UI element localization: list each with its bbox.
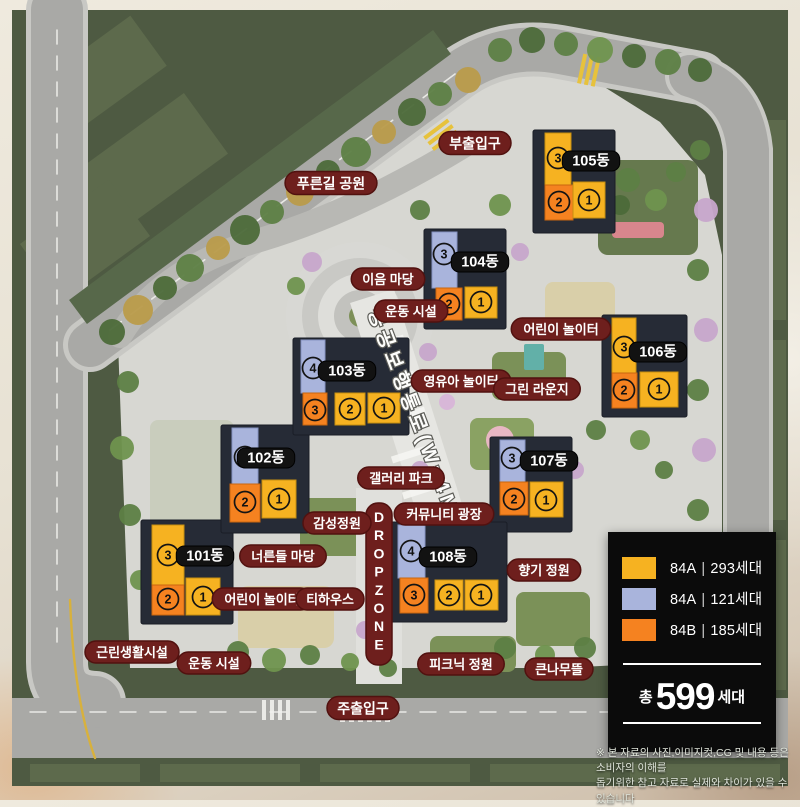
- dropzone-letter: O: [374, 545, 385, 561]
- facility-label: 갤러리 파크: [358, 467, 444, 489]
- svg-text:티하우스: 티하우스: [306, 592, 354, 607]
- disclaimer-line-2: 돕기위한 참고 자료로 실제와 차이가 있을 수 있습니다: [596, 776, 796, 806]
- park-label: 푸른길 공원: [285, 172, 377, 195]
- svg-text:103동: 103동: [328, 363, 366, 380]
- building-108동: 4321: [389, 522, 507, 622]
- svg-text:107동: 107동: [530, 453, 568, 470]
- tree: [687, 379, 709, 401]
- tree: [586, 420, 606, 440]
- svg-text:운동 시설: 운동 시설: [385, 304, 436, 319]
- legend-item-label: 84A|121세대: [670, 588, 762, 609]
- legend-divider: [623, 663, 761, 665]
- legend-item-label: 84B|185세대: [670, 619, 762, 640]
- tree: [655, 49, 681, 75]
- building-label-105동: 105동: [562, 151, 619, 171]
- svg-text:101동: 101동: [186, 548, 224, 565]
- building-label-101동: 101동: [176, 546, 233, 566]
- facility-label: 이음 마당: [351, 268, 424, 290]
- tree: [439, 394, 455, 410]
- unit-number: 3: [165, 549, 172, 563]
- svg-text:영유아 놀이터: 영유아 놀이터: [423, 374, 498, 389]
- unit-number: 1: [543, 494, 550, 508]
- tree: [688, 58, 712, 82]
- facility-label: 운동 시설: [177, 652, 250, 674]
- facility-label: 너른들 마당: [240, 545, 326, 567]
- svg-text:어린이 놀이터: 어린이 놀이터: [523, 322, 598, 337]
- legend-total-prefix: 총: [639, 686, 653, 707]
- site-plan-page: { "colors":{ "roof_yellow":"#F6B221", "r…: [0, 0, 800, 800]
- legend-item-label: 84A|293세대: [670, 557, 762, 578]
- legend-item: 84A|121세대: [608, 583, 776, 614]
- unit-number: 3: [441, 248, 448, 262]
- svg-text:너른들 마당: 너른들 마당: [251, 549, 314, 564]
- tree: [206, 236, 230, 260]
- building-label-102동: 102동: [237, 448, 294, 468]
- legend-item: 84A|293세대: [608, 552, 776, 583]
- tree: [99, 319, 125, 345]
- legend-panel: 84A|293세대84A|121세대84B|185세대 총 599 세대: [608, 532, 776, 752]
- svg-text:갤러리 파크: 갤러리 파크: [369, 471, 432, 486]
- tree: [587, 37, 613, 63]
- unit-number: 3: [312, 404, 319, 418]
- unit-number: 1: [586, 194, 593, 208]
- svg-text:그린 라운지: 그린 라운지: [505, 382, 568, 397]
- unit-number: 2: [242, 496, 249, 510]
- dropzone-letter: E: [374, 636, 383, 652]
- svg-text:105동: 105동: [572, 153, 610, 170]
- svg-text:근린생활시설: 근린생활시설: [96, 645, 168, 660]
- dropzone-letter: P: [374, 564, 383, 580]
- unit-number: 3: [411, 589, 418, 603]
- unit-number: 1: [478, 296, 485, 310]
- tree: [341, 137, 371, 167]
- tree: [488, 38, 512, 62]
- facility-label: 감성정원: [303, 512, 371, 534]
- tree: [398, 98, 426, 126]
- legend-swatch: [622, 588, 656, 610]
- legend-total: 총 599 세대: [608, 670, 776, 722]
- unit-number: 2: [446, 589, 453, 603]
- building-label-104동: 104동: [451, 252, 508, 272]
- dropzone-letter: D: [374, 509, 384, 525]
- tree: [287, 277, 305, 295]
- legend-item: 84B|185세대: [608, 614, 776, 645]
- tree: [410, 200, 430, 220]
- unit-number: 4: [310, 362, 317, 376]
- tree: [372, 120, 396, 144]
- legend-swatch: [622, 619, 656, 641]
- tree: [616, 168, 640, 192]
- tree: [123, 295, 153, 325]
- tree: [300, 645, 320, 665]
- facility-label: 운동 시설: [374, 300, 447, 322]
- unit-number: 4: [408, 545, 415, 559]
- tree: [230, 215, 260, 245]
- tree: [574, 637, 596, 659]
- svg-text:큰나무뜰: 큰나무뜰: [535, 662, 583, 677]
- facility-label: 피크닉 정원: [418, 653, 504, 675]
- building-label-108동: 108동: [419, 547, 476, 567]
- tree: [260, 200, 284, 224]
- facility-label: 근린생활시설: [85, 641, 179, 663]
- svg-text:이음 마당: 이음 마당: [362, 272, 413, 287]
- tree: [110, 436, 134, 460]
- svg-text:푸른길 공원: 푸른길 공원: [297, 176, 365, 192]
- unit-number: 3: [555, 152, 562, 166]
- svg-text:어린이 놀이터: 어린이 놀이터: [224, 592, 299, 607]
- svg-text:향기 정원: 향기 정원: [518, 563, 569, 578]
- facility-label: 향기 정원: [507, 559, 580, 581]
- legend-rows: 84A|293세대84A|121세대84B|185세대: [608, 552, 776, 645]
- facility-label: 커뮤니티 광장: [394, 503, 493, 525]
- dropzone-letter: O: [374, 600, 385, 616]
- unit-number: 2: [347, 403, 354, 417]
- dropzone-letter: N: [374, 618, 384, 634]
- tree: [694, 198, 718, 222]
- tree: [687, 259, 709, 281]
- unit-number: 1: [656, 383, 663, 397]
- tree: [489, 194, 511, 216]
- dropzone-letter: R: [374, 527, 384, 543]
- legend-total-suffix: 세대: [717, 686, 745, 707]
- svg-text:감성정원: 감성정원: [313, 516, 361, 531]
- svg-text:부출입구: 부출입구: [449, 136, 501, 152]
- tree: [119, 504, 141, 526]
- svg-text:108동: 108동: [429, 549, 467, 566]
- unit-number: 2: [165, 593, 172, 607]
- svg-text:106동: 106동: [639, 344, 677, 361]
- unit-number: 2: [511, 493, 518, 507]
- unit-number: 1: [381, 402, 388, 416]
- unit-number: 1: [276, 493, 283, 507]
- tree: [694, 318, 718, 342]
- building-105동: 321: [533, 130, 615, 233]
- tree: [554, 32, 578, 56]
- building-label-107동: 107동: [520, 451, 577, 471]
- tree: [176, 254, 204, 282]
- legend-swatch: [622, 557, 656, 579]
- building-label-103동: 103동: [318, 361, 375, 381]
- tree: [428, 82, 452, 106]
- tree: [117, 371, 139, 393]
- legend-total-value: 599: [656, 678, 715, 715]
- tree: [262, 648, 286, 672]
- unit-number: 1: [200, 591, 207, 605]
- tree: [687, 499, 709, 521]
- unit-number: 1: [478, 589, 485, 603]
- unit-number: 3: [509, 452, 516, 466]
- tree: [455, 67, 481, 93]
- tree: [655, 461, 673, 479]
- tree: [341, 653, 359, 671]
- facility-label: 어린이 놀이터: [511, 318, 610, 340]
- facility-label: 큰나무뜰: [525, 658, 593, 680]
- dropzone-letter: Z: [375, 582, 384, 598]
- tree: [692, 438, 716, 462]
- svg-text:104동: 104동: [461, 254, 499, 271]
- svg-text:102동: 102동: [247, 450, 285, 467]
- svg-text:주출입구: 주출입구: [337, 701, 389, 717]
- facility-label: 그린 라운지: [494, 378, 580, 400]
- building-label-106동: 106동: [629, 342, 686, 362]
- building-106동: 321: [602, 315, 687, 417]
- svg-text:피크닉 정원: 피크닉 정원: [429, 657, 492, 672]
- tree: [153, 276, 177, 300]
- tree: [511, 243, 529, 261]
- tree: [690, 140, 710, 160]
- entrance-label: 주출입구: [327, 697, 399, 720]
- unit-number: 2: [556, 196, 563, 210]
- svg-text:커뮤니티 광장: 커뮤니티 광장: [406, 507, 481, 522]
- disclaimer-text: ※ 본 자료의 사진,이미지컷,CG 및 내용 등은 소비자의 이해를 돕기위한…: [596, 746, 796, 807]
- tree: [419, 343, 437, 361]
- building-102동: 321: [221, 425, 309, 533]
- unit-number: 2: [621, 384, 628, 398]
- unit-number: 3: [621, 341, 628, 355]
- entrance-label: 부출입구: [439, 132, 511, 155]
- tree: [519, 27, 545, 53]
- facility-label: 티하우스: [296, 588, 364, 610]
- disclaimer-line-1: ※ 본 자료의 사진,이미지컷,CG 및 내용 등은 소비자의 이해를: [596, 746, 796, 776]
- tree: [645, 189, 667, 211]
- tree: [630, 430, 650, 450]
- svg-text:운동 시설: 운동 시설: [188, 656, 239, 671]
- tree: [622, 44, 646, 68]
- tree: [666, 162, 686, 182]
- tree: [302, 252, 322, 272]
- legend-divider: [623, 722, 761, 724]
